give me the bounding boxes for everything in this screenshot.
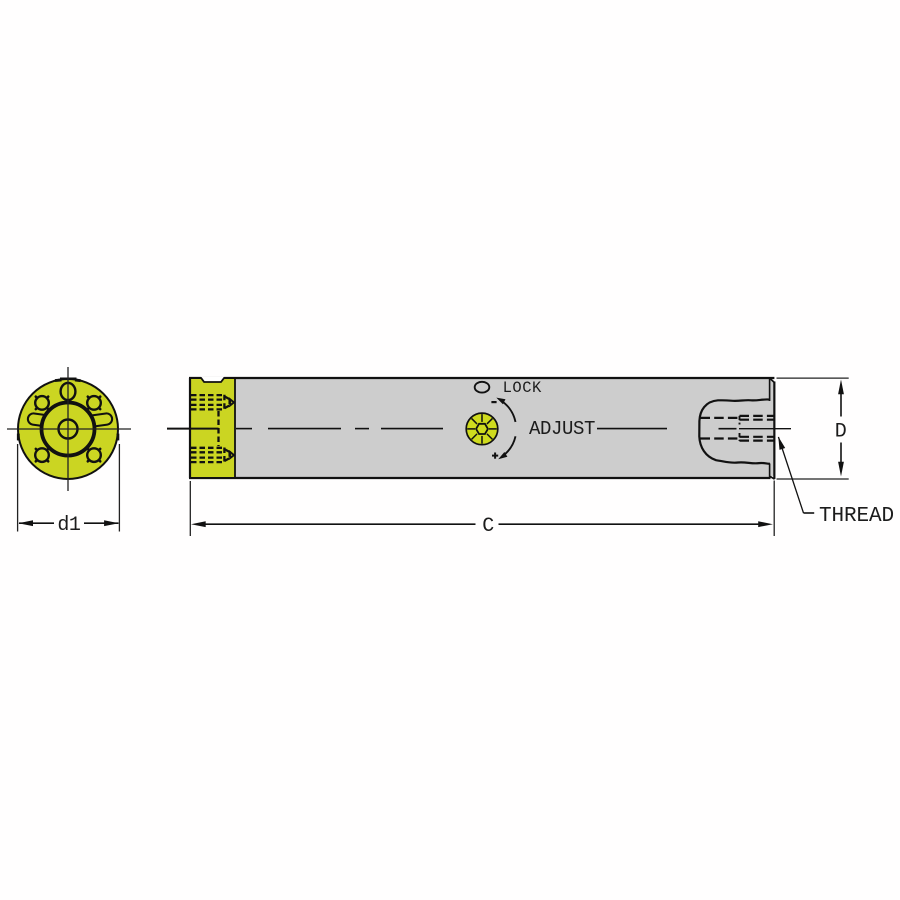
svg-text:ADJUST: ADJUST xyxy=(529,418,595,440)
svg-text:d1: d1 xyxy=(57,514,81,537)
svg-text:LOCK: LOCK xyxy=(503,379,542,397)
svg-text:C: C xyxy=(482,515,494,538)
svg-text:D: D xyxy=(835,420,847,443)
svg-text:THREAD: THREAD xyxy=(819,505,894,528)
